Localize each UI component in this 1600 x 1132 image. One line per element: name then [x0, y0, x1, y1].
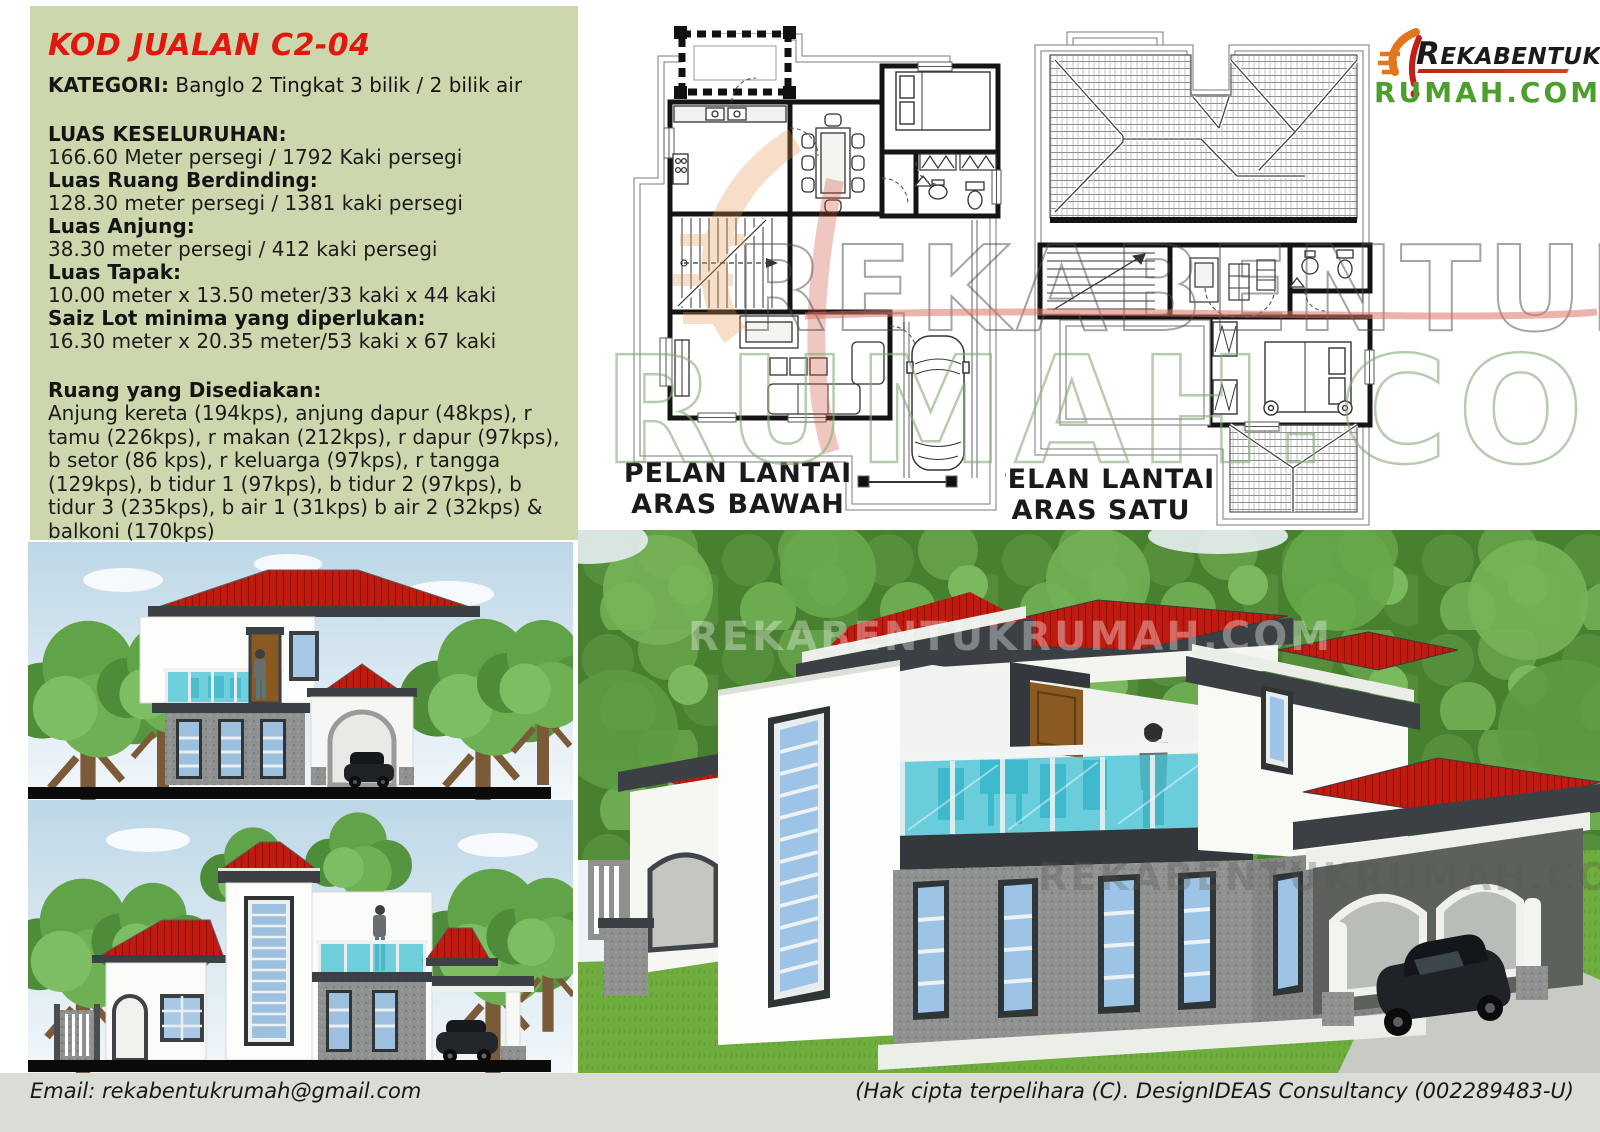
roof-plan [1050, 55, 1357, 220]
first-plan-label-line2: ARAS SATU [1011, 495, 1190, 526]
spec-value-luas-berdinding: 128.30 meter persegi / 1381 kaki persegi [48, 192, 560, 215]
front-elevation-render [28, 542, 573, 800]
spec-list: LUAS KESELURUHAN: 166.60 Meter persegi /… [48, 123, 560, 353]
spec-value-luas-anjung: 38.30 meter persegi / 412 kaki persegi [48, 238, 560, 261]
rooms-provided-label: Ruang yang Disediakan: [48, 379, 560, 402]
spec-value-saiz-lot: 16.30 meter x 20.35 meter/53 kaki x 67 k… [48, 330, 560, 353]
ground-line [28, 1060, 551, 1072]
ground-floor-plan-drawing: PELAN LANTAI ARAS BAWAH [620, 10, 1010, 525]
spec-value-luas-keseluruhan: 166.60 Meter persegi / 1792 Kaki persegi [48, 146, 560, 169]
category-line: KATEGORI: Banglo 2 Tingkat 3 bilik / 2 b… [48, 73, 560, 97]
brand-name-bottom: RUMAH.COM [1374, 76, 1600, 109]
render-watermark-bottom: REKABENTUKRUMAH.COM [1038, 855, 1600, 899]
ground-plan-label-line1: PELAN LANTAI [624, 458, 852, 489]
balcony-roof [1230, 425, 1357, 512]
center-tower [218, 842, 320, 1060]
brand-underline [1417, 69, 1569, 73]
roof-fascia [148, 606, 480, 617]
first-floor-plan-drawing: PELAN LANTAI ARAS SATU [1005, 20, 1400, 530]
footer-bar: Email: rekabentukrumah@gmail.com (Hak ci… [0, 1073, 1600, 1132]
first-plan-label: PELAN LANTAI ARAS SATU [1005, 464, 1215, 526]
void-room [1060, 320, 1210, 425]
perspective-render: REKABENTUKRUMAH.COM REKABENTUKRUMAH.COM [578, 530, 1600, 1073]
render-watermark-top: REKABENTUKRUMAH.COM [688, 614, 1333, 660]
brand-logo: REKABENTUK RUMAH.COM [1372, 22, 1598, 120]
first-plan-label-line1: PELAN LANTAI [1005, 464, 1215, 495]
upper-window [291, 633, 317, 679]
floor-band [152, 703, 310, 713]
ground-plan-label: PELAN LANTAI ARAS BAWAH [624, 458, 852, 520]
tall-window-strip [768, 706, 830, 1008]
info-panel: KOD JUALAN C2-04 KATEGORI: Banglo 2 Ting… [30, 6, 578, 540]
spec-label-luas-anjung: Luas Anjung: [48, 215, 560, 238]
spec-label-saiz-lot: Saiz Lot minima yang diperlukan: [48, 307, 560, 330]
porch-pergola [674, 26, 796, 99]
side-elevation-render [28, 800, 573, 1073]
copyright-text: (Hak cipta terpelihara (C). DesignIDEAS … [855, 1079, 1574, 1103]
rooms-provided-block: Ruang yang Disediakan: Anjung kereta (19… [48, 379, 560, 543]
spec-value-luas-tapak: 10.00 meter x 13.50 meter/33 kaki x 44 k… [48, 284, 560, 307]
car-top-view-icon [907, 336, 969, 470]
contact-email: Email: rekabentukrumah@gmail.com [30, 1079, 421, 1103]
category-label: KATEGORI: [48, 73, 169, 97]
brochure-page: KOD JUALAN C2-04 KATEGORI: Banglo 2 Ting… [0, 0, 1600, 1132]
ground-plan-label-line2: ARAS BAWAH [631, 489, 845, 520]
rooms-provided-text: Anjung kereta (194kps), anjung dapur (48… [48, 402, 560, 543]
ground-line [28, 787, 551, 799]
spec-label-luas-tapak: Luas Tapak: [48, 261, 560, 284]
brand-name-top: REKABENTUK [1416, 36, 1600, 72]
bed-icon [896, 72, 990, 130]
lower-windows [176, 719, 286, 779]
sale-code-title: KOD JUALAN C2-04 [48, 28, 560, 63]
spec-label-luas-keseluruhan: LUAS KESELURUHAN: [48, 123, 560, 146]
gate-fence [54, 1004, 100, 1060]
category-value: Banglo 2 Tingkat 3 bilik / 2 bilik air [169, 73, 522, 97]
spec-label-luas-berdinding: Luas Ruang Berdinding: [48, 169, 560, 192]
